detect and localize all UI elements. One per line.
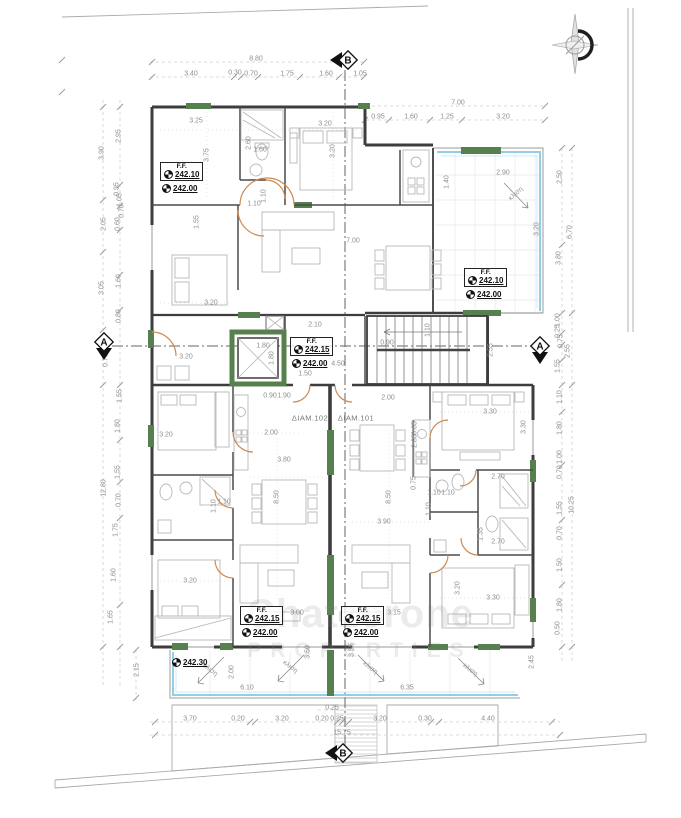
elevation-title: F.F. <box>468 269 503 276</box>
section-marker-b: B <box>324 737 356 774</box>
elevation-box: F.F.242.15 <box>341 606 384 625</box>
level-icon <box>172 658 181 667</box>
elevation-value: 242.30 <box>183 658 207 667</box>
elevation-box: F.F.242.15 <box>290 337 333 356</box>
elevation-value: 242.10 <box>175 170 199 179</box>
north-arrow-icon <box>552 14 598 74</box>
walls-interior <box>152 107 533 647</box>
elevation-marker: F.F.242.10242.00 <box>464 268 507 299</box>
elevation-box: F.F.242.10 <box>160 162 203 181</box>
elevation-title: F.F. <box>164 163 199 170</box>
elevation-marker: 242.30 <box>170 658 207 667</box>
elevation-box: F.F.242.10 <box>464 268 507 287</box>
level-icon <box>345 614 354 623</box>
elevation-box: F.F.242.15 <box>240 606 283 625</box>
elevation-value: 242.15 <box>255 614 279 623</box>
section-marker-a: A <box>524 333 556 370</box>
elevation-marker: F.F.242.15242.00 <box>341 606 384 637</box>
elevation-sub-value: 242.00 <box>303 359 327 368</box>
elevation-value: 242.15 <box>356 614 380 623</box>
level-icon <box>343 628 352 637</box>
svg-text:B: B <box>339 749 346 760</box>
elevation-value: 242.15 <box>305 345 329 354</box>
elevation-sub-value: 242.00 <box>477 290 501 299</box>
elevation-sub-value: 242.00 <box>253 628 277 637</box>
site-boundary-lines <box>55 6 646 788</box>
level-icon <box>244 614 253 623</box>
elevator <box>232 316 284 384</box>
level-icon <box>468 276 477 285</box>
elevation-sub-value: 242.00 <box>354 628 378 637</box>
section-marker-a: A <box>88 329 120 366</box>
svg-text:A: A <box>100 338 107 349</box>
elevation-sub-value: 242.00 <box>173 184 197 193</box>
section-marker-b: B <box>329 44 361 81</box>
elevation-marker: F.F.242.10242.00 <box>160 162 203 193</box>
door-arcs <box>152 178 478 578</box>
elevation-value: 242.10 <box>479 276 503 285</box>
floor-plan: Chatzerone PROPERTIES 8.803.400.300.701.… <box>0 0 681 818</box>
elevation-marker: F.F.242.15242.00 <box>290 337 333 368</box>
elevation-title: F.F. <box>345 607 380 614</box>
level-icon <box>242 628 251 637</box>
level-icon <box>164 170 173 179</box>
level-icon <box>466 290 475 299</box>
level-icon <box>162 184 171 193</box>
elevation-title: F.F. <box>244 607 279 614</box>
elevation-title: F.F. <box>294 338 329 345</box>
floor-plan-drawing <box>0 0 681 818</box>
level-icon <box>292 359 301 368</box>
svg-text:B: B <box>344 56 351 67</box>
furniture <box>155 110 529 640</box>
svg-text:A: A <box>536 342 543 353</box>
staircase <box>367 316 487 384</box>
walls-outer <box>152 107 543 647</box>
level-icon <box>294 345 303 354</box>
elevation-marker: F.F.242.15242.00 <box>240 606 283 637</box>
dimension-ticks <box>59 57 575 738</box>
